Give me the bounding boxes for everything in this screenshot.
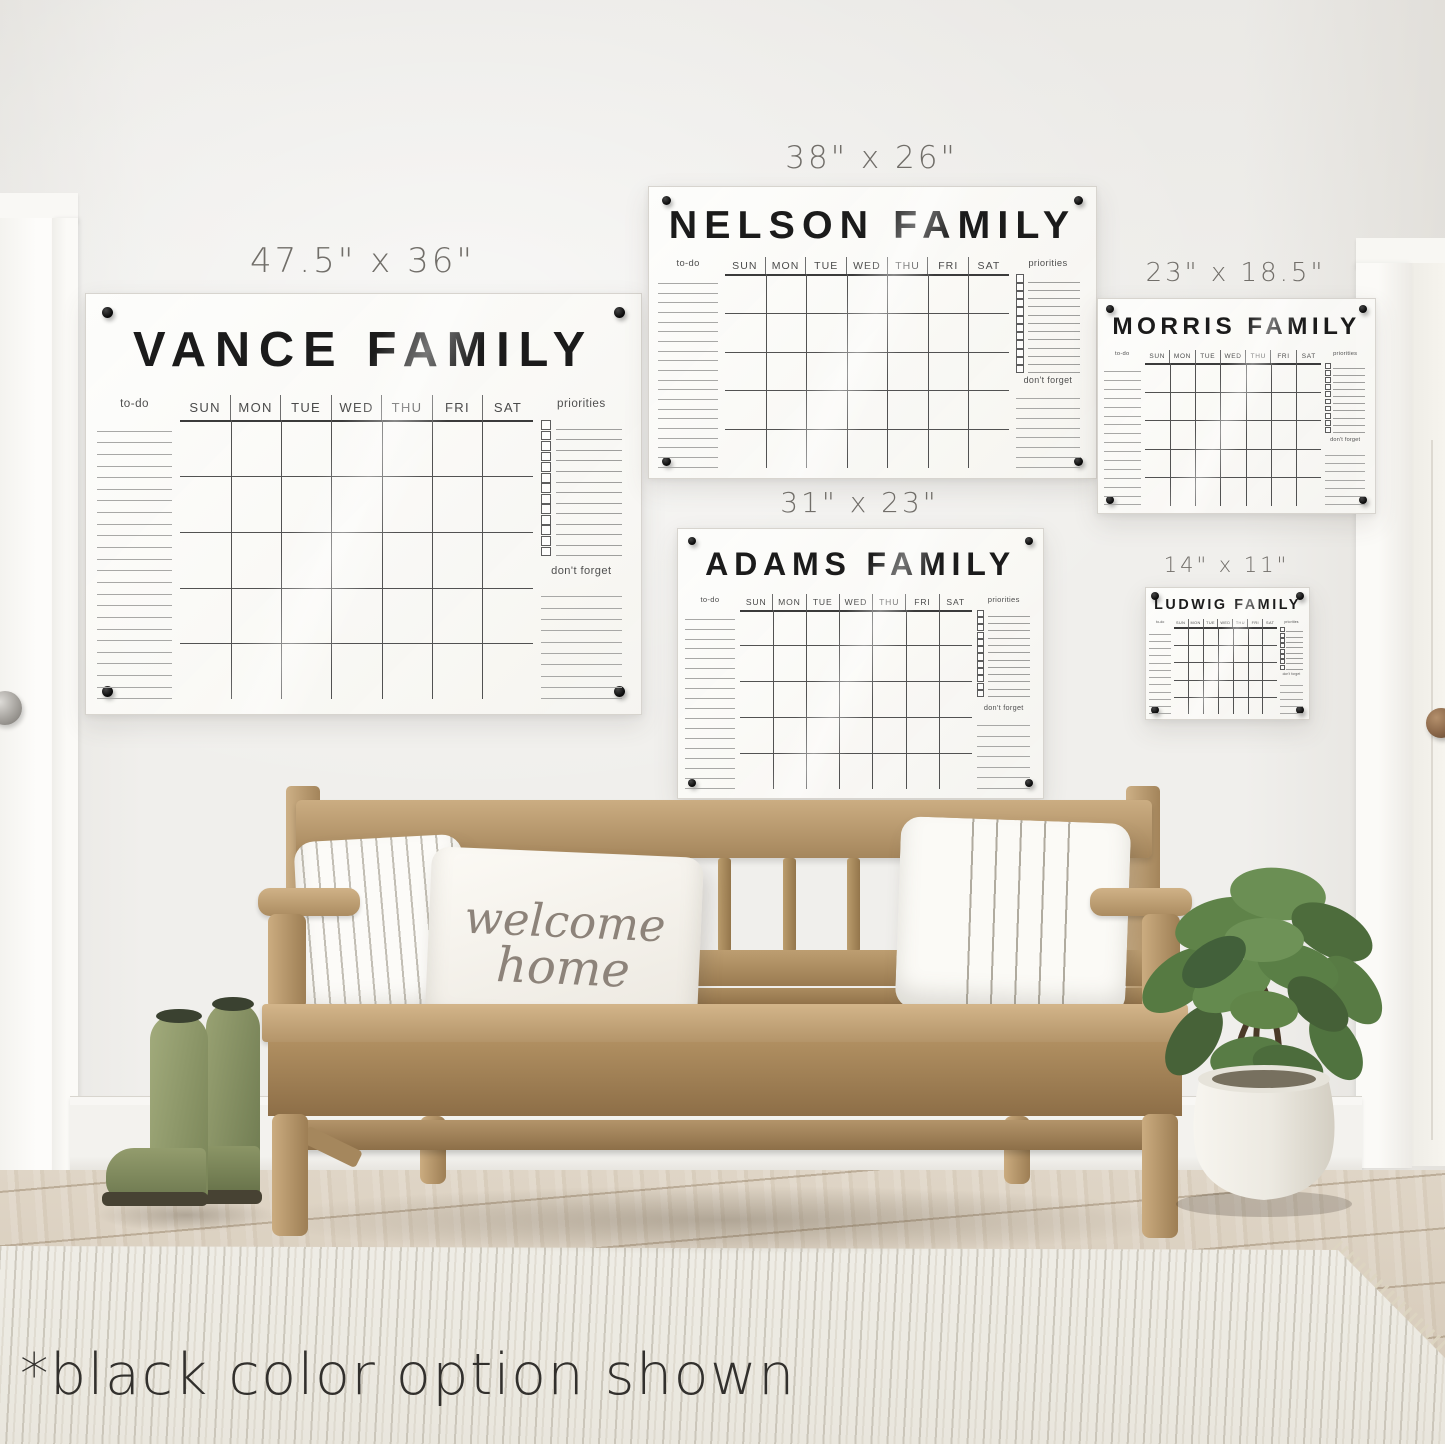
dont-forget-line [541,654,621,665]
priority-row [541,494,621,504]
day-header: THU [873,594,906,610]
priority-checkbox [977,646,984,653]
day-header: MON [1170,350,1195,363]
plant-leaves [1136,863,1392,1094]
dont-forget-line [1325,464,1365,472]
grid-hline [180,476,532,477]
grid-vline [1170,363,1171,505]
todo-line [97,641,172,653]
priority-checkbox [1016,291,1024,299]
grid-vline [1262,627,1263,714]
grid-hline [1174,680,1278,681]
priority-line [1333,375,1365,376]
dont-forget-line [541,597,621,608]
dont-forget-line [541,643,621,654]
priority-line [1333,389,1365,390]
grid-hline [1145,477,1321,478]
day-header: SUN [740,594,773,610]
bench-floor-shadow [255,1185,1195,1255]
todo-line [1149,700,1171,707]
pillow-text-home: home [495,942,631,997]
day-header: SAT [940,594,972,610]
bench-apron [268,1042,1182,1116]
grid-vline [872,610,873,789]
grid-hline [1174,662,1278,663]
priority-row [541,473,621,483]
priorities-label: priorities [1325,351,1365,357]
todo-line [97,467,172,479]
todo-line [1104,425,1141,434]
grid-vline [1188,627,1189,714]
priority-row [1280,649,1304,654]
priority-checkbox [1325,399,1331,405]
todo-line [1149,678,1171,685]
todo-line [685,749,734,759]
priority-checkbox [1280,627,1285,632]
todo-line [658,410,718,420]
priority-row [1325,363,1365,369]
priority-checkbox [977,668,984,675]
priority-checkbox [1325,391,1331,397]
dont-forget-line [1325,497,1365,505]
priorities-label: priorities [541,397,621,410]
day-header: TUE [806,257,847,274]
priority-checkbox [1325,377,1331,383]
grid-hline [1145,449,1321,450]
bench-arm-left [258,888,360,916]
priority-checkbox [541,547,551,557]
todo-line [1104,452,1141,461]
dont-forget-line [1280,686,1304,693]
grid-header-line [180,420,532,422]
priority-checkbox [541,420,551,430]
priority-checkbox [977,639,984,646]
todo-line [658,294,718,304]
todo-line [97,560,172,572]
priority-checkbox [1325,427,1331,433]
dont-forget-line [1016,438,1081,448]
dont-forget-line [1325,489,1365,497]
priority-checkbox [541,431,551,441]
day-header: MON [773,594,806,610]
dont-forget-lines [1280,679,1304,714]
todo-line [658,352,718,362]
calendar-panel-vance: VANCE FAMILYto-doSUNMONTUEWEDTHUFRISATpr… [85,293,642,715]
dont-forget-line [541,688,621,699]
day-header: TUE [1196,350,1221,363]
dont-forget-line [1280,707,1304,714]
grid-vline [887,274,888,468]
grid-hline [1174,697,1278,698]
grid-vline [231,420,232,699]
todo-line [658,303,718,313]
grid-vline [1248,627,1249,714]
priorities-list [541,420,621,557]
priority-row [1280,633,1304,638]
priority-row [541,420,621,430]
priority-checkbox [1016,340,1024,348]
todo-lines [658,274,718,468]
priority-row [1325,406,1365,412]
priority-row [977,683,1030,690]
grid-vline [806,610,807,789]
size-label: 14" x 11" [1145,553,1308,577]
priority-line [1333,432,1365,433]
todo-lines [685,610,734,789]
priority-row [541,547,621,557]
boot-sole [102,1192,208,1206]
grid-header-line [1145,363,1321,365]
priority-line [1286,669,1303,670]
priorities-list [1325,363,1365,433]
todo-line [97,688,172,700]
todo-line [685,699,734,709]
day-header: SAT [1297,350,1321,363]
todo-label: to-do [1149,620,1171,624]
priority-checkbox [977,675,984,682]
priority-row [1280,627,1304,632]
todo-line [658,313,718,323]
priority-row [1325,413,1365,419]
calendar-vance: 47.5" x 36" VANCE FAMILYto-doSUNMONTUEWE… [85,293,640,713]
day-header: THU [1233,619,1248,627]
todo-line [97,478,172,490]
striped-pillow-right [895,816,1132,1016]
priority-row [1016,316,1081,324]
todo-line [97,571,172,583]
todo-line [685,630,734,640]
day-header-row: SUNMONTUEWEDTHUFRISAT [180,395,532,420]
priority-line [1333,418,1365,419]
todo-line [97,630,172,642]
todo-line [97,525,172,537]
todo-line [1149,671,1171,678]
dont-forget-line [977,747,1030,757]
left-door-frame [52,218,78,1178]
priority-row [541,515,621,525]
todo-line [685,649,734,659]
priority-row [1280,638,1304,643]
todo-line [685,719,734,729]
priority-row [1280,659,1304,664]
striped-rug [0,1236,1445,1444]
dont-forget-line [1016,458,1081,468]
priority-line [1333,410,1365,411]
priority-checkbox [1016,274,1024,282]
todo-line [1149,649,1171,656]
day-header: MON [766,257,807,274]
priority-checkbox [541,494,551,504]
priority-row [1016,307,1081,315]
dont-forget-lines [977,716,1030,789]
day-header-row: SUNMONTUEWEDTHUFRISAT [1145,350,1321,363]
priority-row [977,624,1030,631]
day-header: WED [1221,350,1246,363]
priority-row [1016,340,1081,348]
calendar-panel-ludwig: LUDWIG FAMILYto-doSUNMONTUEWEDTHUFRISATp… [1145,587,1310,720]
calendar-title: MORRIS FAMILY [1098,309,1375,346]
grid-vline [1220,363,1221,505]
grid-header-line [725,274,1009,276]
priorities-list [977,610,1030,697]
day-header: SAT [969,257,1009,274]
calendar-title: ADAMS FAMILY [678,541,1043,588]
grid-vline [382,420,383,699]
dont-forget-line [1280,693,1304,700]
calendar-ludwig: 14" x 11" LUDWIG FAMILYto-doSUNMONTUEWED… [1145,587,1308,718]
todo-line [1104,479,1141,488]
priority-checkbox [977,690,984,697]
todo-line [685,769,734,779]
dont-forget-label: don't forget [972,703,1036,712]
todo-line [1104,443,1141,452]
priority-checkbox [1280,654,1285,659]
bench-spindle [718,858,731,952]
priority-row [1016,324,1081,332]
todo-line [1104,417,1141,426]
bench-seat [262,1004,1188,1042]
priority-row [1325,384,1365,390]
grid-vline [1271,363,1272,505]
priority-checkbox [1280,665,1285,670]
grid-vline [928,274,929,468]
priority-checkbox [541,462,551,472]
priority-line [1333,403,1365,404]
priority-row [1325,370,1365,376]
grid-vline [847,274,848,468]
dont-forget-line [977,768,1030,778]
product-photo-scene: 47.5" x 36" VANCE FAMILYto-doSUNMONTUEWE… [0,0,1445,1444]
todo-lines [97,420,172,699]
day-header-row: SUNMONTUEWEDTHUFRISAT [1174,619,1278,627]
todo-line [97,676,172,688]
dont-forget-line [1016,399,1081,409]
dont-forget-line [1016,409,1081,419]
day-header: FRI [433,395,483,420]
todo-line [658,284,718,294]
todo-line [685,610,734,620]
dont-forget-line [1325,472,1365,480]
priority-checkbox [977,610,984,617]
priority-row [1016,299,1081,307]
todo-line [1149,693,1171,700]
priority-checkbox [1016,299,1024,307]
day-header: FRI [1248,619,1263,627]
priority-row [977,690,1030,697]
priority-row [1016,283,1081,291]
bench-spindle [847,858,860,952]
priorities-list [1280,627,1304,670]
todo-line [1104,434,1141,443]
todo-line [685,640,734,650]
todo-line [658,371,718,381]
priority-line [1333,382,1365,383]
priority-row [541,462,621,472]
priority-row [1016,332,1081,340]
priority-row [1325,420,1365,426]
grid-vline [281,420,282,699]
priority-line [988,696,1031,697]
todo-line [1149,635,1171,642]
day-header: THU [888,257,929,274]
priority-row [541,525,621,535]
grid-hline [725,313,1009,314]
grid-vline [1218,627,1219,714]
priority-row [541,536,621,546]
todo-line [1104,372,1141,381]
priority-row [1325,399,1365,405]
todo-line [1104,390,1141,399]
day-header: TUE [807,594,840,610]
todo-line [97,432,172,444]
todo-line [685,679,734,689]
grid-vline [806,274,807,468]
todo-line [97,420,172,432]
todo-line [97,513,172,525]
priority-row [977,675,1030,682]
todo-lines [1104,363,1141,505]
grid-vline [766,274,767,468]
dont-forget-line [541,631,621,642]
dont-forget-line [541,665,621,676]
priority-checkbox [1016,365,1024,373]
priority-checkbox [541,483,551,493]
priority-checkbox [1280,643,1285,648]
size-label: 23" x 18.5" [1097,258,1374,288]
dont-forget-lines [1325,448,1365,506]
grid-vline [773,610,774,789]
priority-row [1280,643,1304,648]
dont-forget-line [1280,700,1304,707]
day-header: MON [231,395,281,420]
bench-spindle [783,858,796,952]
day-header: WED [847,257,888,274]
todo-line [658,274,718,284]
todo-line [685,669,734,679]
bench-stretcher [300,1120,1150,1150]
priority-checkbox [541,441,551,451]
todo-label: to-do [658,258,718,268]
dont-forget-line [1016,429,1081,439]
priority-checkbox [1280,638,1285,643]
priority-checkbox [1016,283,1024,291]
priority-row [1325,391,1365,397]
day-header: WED [840,594,873,610]
day-header: THU [382,395,432,420]
todo-line [1149,656,1171,663]
grid-hline [740,645,972,646]
priority-row [1280,654,1304,659]
priority-checkbox [1280,649,1285,654]
potted-fiddle-leaf-plant [1136,828,1392,1220]
todo-line [658,342,718,352]
calendar-title: VANCE FAMILY [86,313,641,387]
todo-label: to-do [685,595,734,604]
dont-forget-label: don't forget [1321,437,1369,443]
grid-hline [180,532,532,533]
grid-header-line [740,610,972,612]
day-header: SUN [1174,619,1189,627]
day-header: SUN [1145,350,1170,363]
size-label: 47.5" x 36" [85,241,640,281]
dont-forget-line [541,677,621,688]
priority-row [1325,377,1365,383]
day-header: SUN [725,257,766,274]
priorities-label: priorities [1016,258,1081,268]
priority-checkbox [977,661,984,668]
day-header: SAT [1263,619,1277,627]
todo-line [658,448,718,458]
todo-line [1104,488,1141,497]
todo-line [658,381,718,391]
priority-row [977,668,1030,675]
priority-row [541,452,621,462]
dont-forget-line [977,726,1030,736]
priority-row [1280,665,1304,670]
todo-line [685,739,734,749]
priority-checkbox [1016,316,1024,324]
todo-line [97,583,172,595]
grid-hline [1145,420,1321,421]
day-header: TUE [281,395,331,420]
day-header: WED [1218,619,1233,627]
priority-line [1028,372,1081,373]
priority-checkbox [1016,307,1024,315]
priority-checkbox [1280,659,1285,664]
dont-forget-line [977,778,1030,788]
dont-forget-line [1280,679,1304,686]
grid-hline [725,429,1009,430]
todo-line [1104,497,1141,506]
day-header-row: SUNMONTUEWEDTHUFRISAT [740,594,972,610]
rain-boot-right [206,1002,260,1198]
priority-row [977,610,1030,617]
priority-checkbox [1325,384,1331,390]
priority-checkbox [541,473,551,483]
grid-hline [180,588,532,589]
todo-line [685,759,734,769]
day-header: MON [1189,619,1204,627]
todo-line [1104,461,1141,470]
grid-vline [1233,627,1234,714]
grid-vline [432,420,433,699]
todo-line [658,439,718,449]
priority-checkbox [541,536,551,546]
todo-line [685,779,734,789]
todo-line [97,536,172,548]
priority-checkbox [541,515,551,525]
day-header: WED [332,395,382,420]
priority-checkbox [1325,406,1331,412]
day-header-row: SUNMONTUEWEDTHUFRISAT [725,257,1009,274]
calendar-panel-morris: MORRIS FAMILYto-doSUNMONTUEWEDTHUFRISATp… [1097,298,1376,514]
priority-checkbox [541,525,551,535]
priority-row [977,639,1030,646]
dont-forget-line [1016,419,1081,429]
todo-line [97,595,172,607]
size-label: 31" x 23" [677,486,1042,519]
pot-soil [1212,1070,1316,1088]
dont-forget-label: don't forget [533,565,630,577]
todo-line [1149,707,1171,714]
todo-line [1104,399,1141,408]
dont-forget-line [541,609,621,620]
todo-label: to-do [1104,351,1141,357]
grid-vline [331,420,332,699]
dont-forget-line [1325,481,1365,489]
priority-row [1016,349,1081,357]
grid-vline [1195,363,1196,505]
